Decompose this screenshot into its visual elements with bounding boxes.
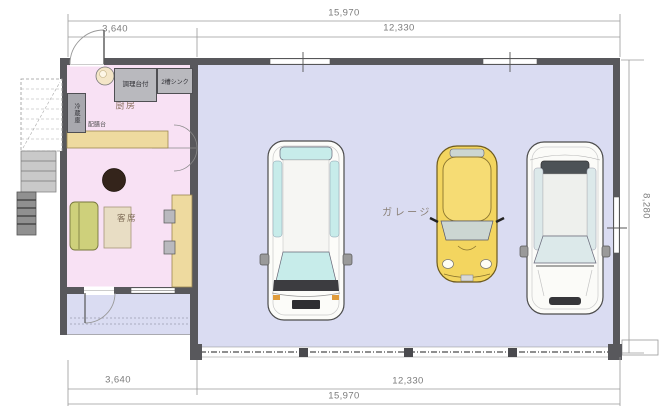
- garage-shutter: [200, 347, 612, 357]
- seating-label: 客席: [117, 212, 137, 224]
- refrigerator-box: 冷蔵庫: [67, 93, 86, 133]
- sink-label: 2槽シンク: [161, 77, 188, 86]
- floor-plan: 15,970 3,640 12,330 3,640 12,330 15,970 …: [0, 0, 670, 413]
- sofa: [70, 202, 98, 250]
- dim-right-height: 8,280: [641, 193, 652, 219]
- serving-counter-label: 配膳台: [88, 120, 106, 129]
- dim-bottom-right: 12,330: [392, 376, 423, 387]
- refrigerator-label: 冷蔵庫: [72, 103, 81, 124]
- prep-counter-label: 調理台付: [122, 81, 150, 89]
- dim-top-left: 3,640: [102, 24, 128, 35]
- garage-label: ガレージ: [382, 204, 432, 219]
- dim-bottom-total: 15,970: [328, 391, 359, 402]
- car-white-van: [260, 141, 352, 320]
- dim-top-total: 15,970: [328, 8, 359, 19]
- prep-counter-box: 調理台付: [114, 68, 157, 102]
- dim-top-right: 12,330: [383, 23, 414, 34]
- dim-bottom-left: 3,640: [105, 375, 131, 386]
- car-white-sedan: [520, 142, 610, 314]
- stairs: [17, 79, 62, 235]
- hand-sink: [96, 67, 114, 85]
- sink-box: 2槽シンク: [157, 68, 193, 94]
- floor-plan-drawing: [0, 0, 670, 413]
- car-yellow: [430, 146, 504, 282]
- round-table: [103, 169, 126, 192]
- serving-counter: [67, 131, 168, 148]
- entrance-door: [70, 30, 104, 67]
